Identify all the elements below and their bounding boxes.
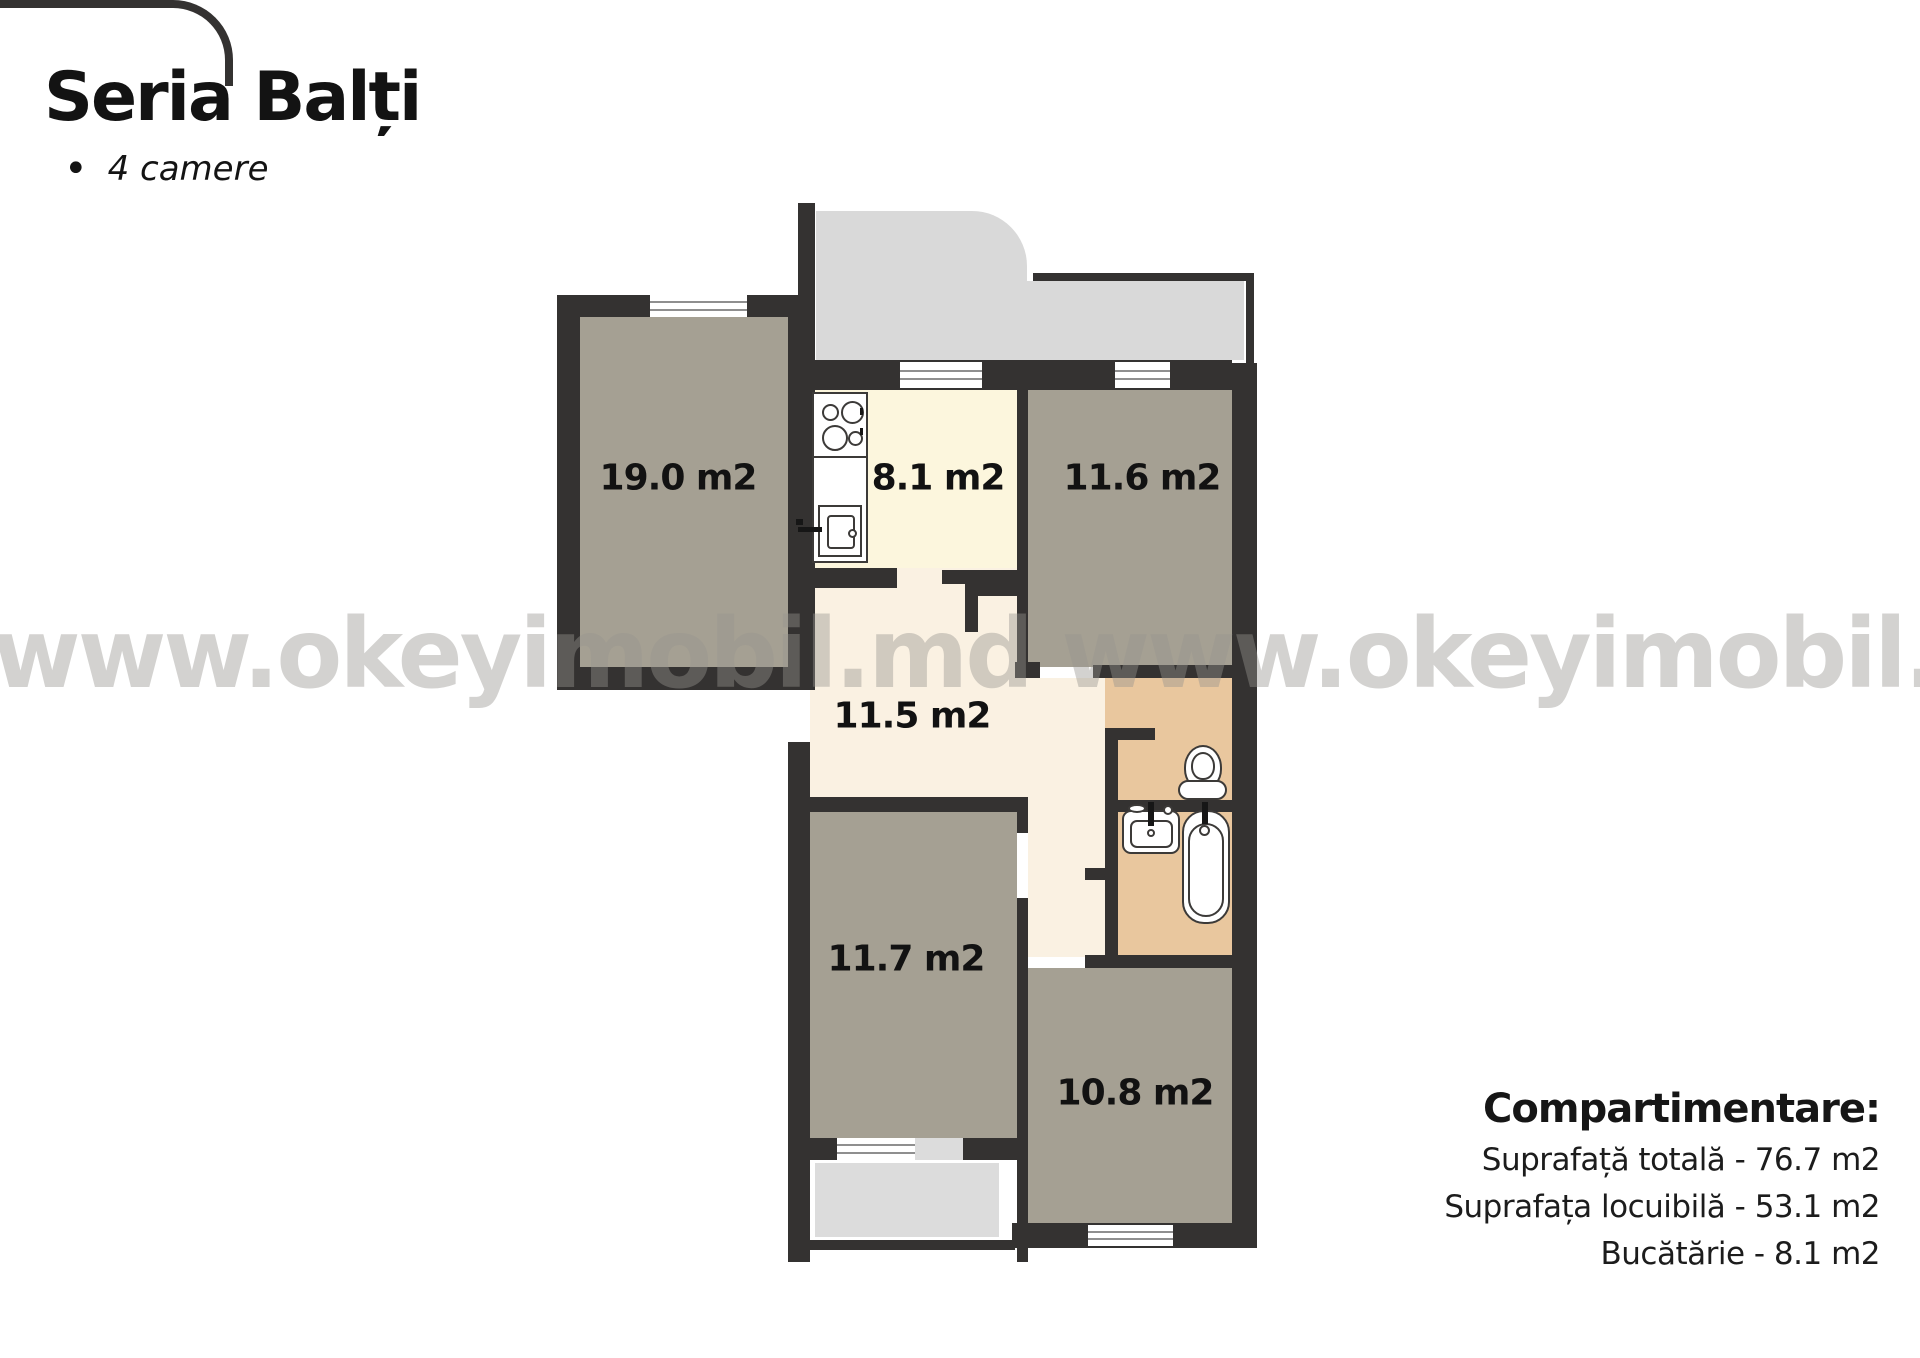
- summary-block: Compartimentare: Suprafață totală - 76.7…: [1444, 1086, 1880, 1273]
- wall: [1015, 662, 1040, 678]
- floor-plan-page: Seria Balți • 4 camere: [0, 0, 1920, 1358]
- window: [837, 1138, 915, 1160]
- room-area-label: 10.8 m2: [1057, 1073, 1214, 1114]
- wall: [788, 797, 1028, 812]
- basin-knob-icon: [1163, 805, 1173, 815]
- hallway-area: [810, 568, 1028, 797]
- loggia-area: [812, 1160, 1002, 1240]
- wall: [1232, 363, 1257, 1248]
- stove-icon: [812, 392, 868, 458]
- room-area-label: 8.1 m2: [872, 458, 1005, 499]
- wall: [557, 667, 815, 690]
- wall: [788, 742, 810, 1262]
- basin-faucet-icon: [1148, 802, 1154, 826]
- wall: [1017, 812, 1028, 833]
- window: [650, 295, 747, 317]
- faucet-icon: [798, 527, 822, 532]
- wall: [1085, 955, 1232, 968]
- summary-heading: Compartimentare:: [1444, 1086, 1880, 1132]
- wall: [808, 1138, 837, 1160]
- summary-line: Bucătărie - 8.1 m2: [1444, 1235, 1880, 1273]
- wall: [1017, 360, 1028, 667]
- wall: [1105, 728, 1155, 740]
- wall: [1105, 728, 1118, 957]
- wall: [1246, 273, 1254, 363]
- toilet-base-icon: [1178, 780, 1227, 800]
- wall: [1017, 898, 1028, 1262]
- wall: [973, 584, 1017, 596]
- room-area-label: 11.6 m2: [1064, 458, 1221, 499]
- room-11-6-area: [1028, 390, 1232, 667]
- series-title: Seria Balți: [44, 58, 420, 137]
- wall: [1085, 868, 1105, 880]
- balcony-area-lower: [1027, 281, 1244, 360]
- room-area-label: 11.7 m2: [828, 939, 985, 980]
- summary-line: Suprafața locuibilă - 53.1 m2: [1444, 1188, 1880, 1226]
- wall: [798, 203, 815, 360]
- kitchen-sink-icon: [818, 505, 862, 557]
- balcony-area: [816, 211, 1027, 360]
- summary-line: Suprafață totală - 76.7 m2: [1444, 1141, 1880, 1179]
- loggia-door-opening: [915, 1138, 963, 1160]
- wall: [557, 295, 580, 690]
- wall: [1033, 273, 1246, 281]
- hall-corridor-area: [1028, 678, 1105, 957]
- wall: [965, 584, 978, 632]
- room-area-label: 19.0 m2: [600, 458, 757, 499]
- rooms-count-subtitle: • 4 camere: [64, 149, 420, 189]
- tub-faucet-icon: [1202, 802, 1208, 824]
- wall: [1093, 665, 1245, 678]
- window: [1115, 362, 1170, 388]
- soap-tray-icon: [1128, 804, 1146, 813]
- bullet-icon: •: [64, 159, 88, 179]
- wall: [963, 1138, 1017, 1160]
- rooms-count-text: 4 camere: [108, 149, 269, 189]
- bathtub-icon: [1182, 810, 1230, 924]
- header: Seria Balți • 4 camere: [44, 58, 420, 189]
- wall: [788, 1240, 1015, 1250]
- window: [900, 362, 982, 388]
- door-opening: [1017, 833, 1028, 898]
- window: [1088, 1225, 1173, 1246]
- wall: [942, 570, 1017, 584]
- room-area-label: 11.5 m2: [834, 696, 991, 737]
- wall: [788, 568, 897, 588]
- faucet-handle-icon: [796, 519, 803, 525]
